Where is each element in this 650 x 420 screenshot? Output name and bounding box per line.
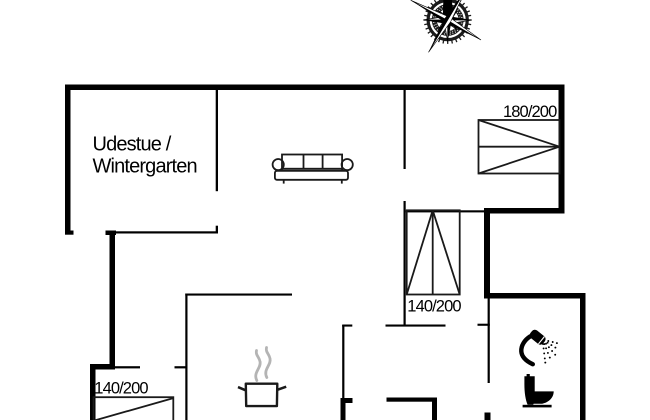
svg-text:Wintergarten: Wintergarten — [93, 155, 197, 177]
svg-text:140/200: 140/200 — [94, 380, 148, 398]
svg-text:140/200: 140/200 — [407, 298, 461, 316]
svg-text:180/200: 180/200 — [503, 103, 557, 121]
svg-text:Udestue /: Udestue / — [93, 133, 172, 155]
